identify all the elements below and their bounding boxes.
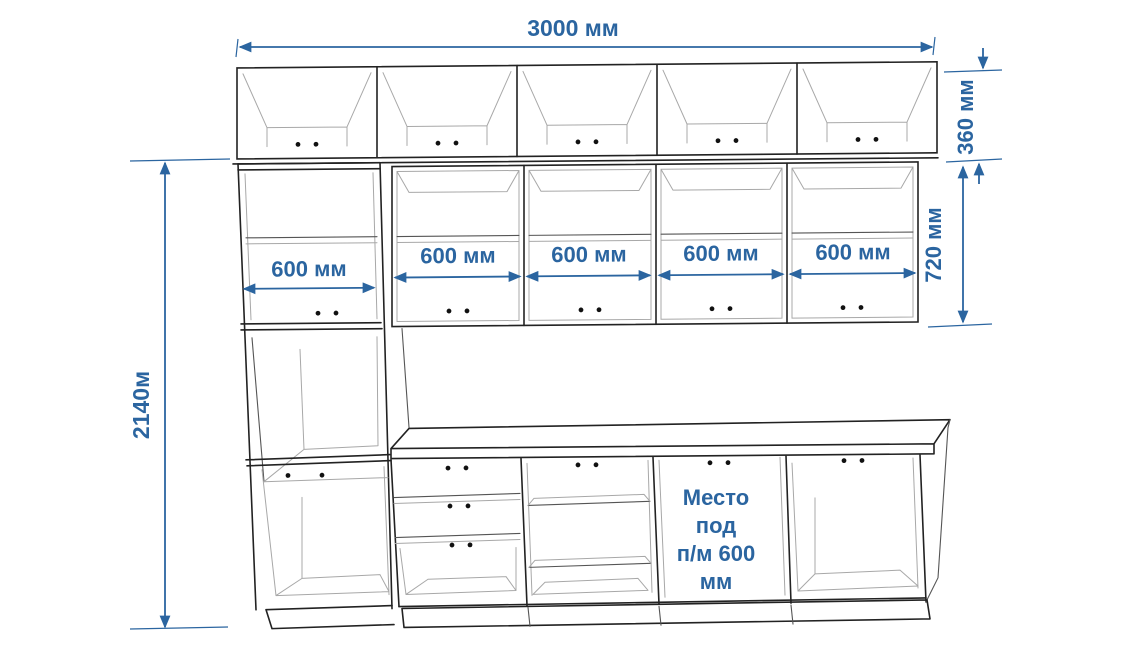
drawing-line: [266, 606, 394, 629]
drawing-line: [594, 462, 599, 467]
drawing-line: [790, 273, 915, 274]
drawing-line: [246, 237, 377, 238]
drawing-line: [237, 62, 937, 159]
drawing-line: [383, 72, 511, 146]
dimension-tall-cabinet-width: 600 мм: [244, 256, 374, 289]
dimension-label-upper-cabinet-height: 360 мм: [953, 79, 978, 154]
dimension-wall-cabinet-4-width: 600 мм: [790, 239, 915, 274]
drawing-line: [792, 458, 918, 591]
door-handles: [296, 137, 879, 147]
dimension-label-tall-cabinet-width: 600 мм: [271, 256, 346, 282]
dimension-label-wall-cabinet-1: 600 мм: [420, 243, 495, 269]
drawing-line: [710, 306, 715, 311]
dimension-label-wall-cabinet-2: 600 мм: [551, 242, 626, 268]
drawing-line: [842, 458, 847, 463]
door-handles: [447, 305, 864, 313]
upper-cabinet-row: [233, 62, 938, 164]
drawing-line: [726, 460, 731, 465]
drawing-line: [859, 305, 864, 310]
dimension-wall-cabinet-1-width: 600 мм: [395, 242, 520, 277]
drawing-line: [238, 163, 380, 170]
drawing-line: [594, 139, 599, 144]
drawing-line: [663, 69, 791, 143]
dimension-label-wall-cabinet-height: 720 мм: [921, 207, 946, 282]
drawing-line: [262, 467, 389, 596]
kitchen-elevation-svg: 600 мм 600 мм 600 мм 600 мм 600 мм 3000 …: [0, 0, 1123, 669]
drawing-line: [400, 547, 516, 594]
drawing-line: [708, 460, 713, 465]
drawing-line: [246, 243, 377, 244]
drawing-line: [533, 578, 648, 594]
dimension-label-total-height: 2140м: [128, 371, 154, 439]
drawing-line: [874, 137, 879, 142]
dishwasher-note: Место под п/м 600 мм: [677, 485, 756, 594]
drawing-line: [926, 420, 950, 602]
drawing-line: [391, 420, 950, 459]
drawing-line: [246, 455, 391, 466]
drawing-line: [296, 142, 301, 147]
drawing-line: [395, 539, 520, 543]
drawing-line: [468, 542, 473, 547]
drawing-line: [792, 232, 913, 233]
drawing-line: [402, 600, 930, 628]
drawing-line: [448, 504, 453, 509]
drawing-line: [928, 324, 992, 327]
drawing-line: [529, 563, 651, 567]
drawing-line: [527, 460, 652, 595]
drawing-line: [734, 138, 739, 143]
drawing-line: [286, 473, 291, 478]
drawing-line: [841, 305, 846, 310]
drawing-line: [728, 306, 733, 311]
dimension-wall-cabinet-height: 720 мм: [921, 167, 992, 327]
dimension-total-height: 2140м: [128, 159, 230, 629]
dimension-label-total-width: 3000 мм: [527, 15, 619, 41]
drawing-line: [399, 598, 926, 607]
drawing-line: [316, 311, 321, 316]
base-cabinet-shelves: [527, 460, 652, 595]
drawing-line: [446, 466, 451, 471]
dimension-label-wall-cabinet-4: 600 мм: [815, 239, 890, 265]
drawing-line: [803, 68, 931, 142]
drawing-line: [395, 533, 520, 537]
base-plinth: [402, 600, 930, 628]
drawing-line: [334, 311, 339, 316]
dimension-wall-cabinet-3-width: 600 мм: [659, 240, 783, 275]
drawing-line: [391, 460, 399, 607]
dimension-total-width: 3000 мм: [236, 15, 935, 57]
drawing-line: [450, 543, 455, 548]
tall-cabinet-plinth: [266, 606, 394, 629]
drawing-line: [527, 275, 650, 276]
drawing-line: [264, 337, 388, 482]
dimension-label-wall-cabinet-3: 600 мм: [683, 240, 758, 266]
tall-cabinet-base-box: [262, 467, 389, 596]
base-cabinet-drawers: [394, 465, 520, 594]
countertop: [391, 420, 950, 459]
drawing-line: [528, 501, 650, 505]
drawing-line: [466, 503, 471, 508]
drawing-line: [529, 234, 651, 235]
drawing-line: [395, 276, 520, 277]
cabinet-artwork: 600 мм 600 мм 600 мм 600 мм 600 мм: [233, 62, 950, 629]
drawing-line: [579, 308, 584, 313]
side-panel-line: [402, 328, 409, 427]
drawing-line: [576, 463, 581, 468]
drawing-line: [465, 309, 470, 314]
drawing-line: [523, 70, 651, 144]
drawing-line: [243, 73, 371, 147]
base-cabinet-run: [391, 420, 950, 628]
tall-cabinet: [238, 163, 394, 629]
drawing-line: [244, 288, 374, 289]
dimension-upper-cabinet-height: 360 мм: [944, 48, 1002, 184]
drawing-line: [576, 140, 581, 145]
dishwasher-note-line-2: под: [696, 513, 736, 538]
drawing-line: [597, 307, 602, 312]
dishwasher-note-line-3: п/м 600: [677, 541, 756, 566]
drawing-line: [380, 163, 392, 609]
drawing-line: [436, 141, 441, 146]
drawing-line: [320, 473, 325, 478]
drawing-line: [464, 466, 469, 471]
dishwasher-note-line-4: мм: [700, 569, 733, 594]
kitchen-drawing-canvas: 600 мм 600 мм 600 мм 600 мм 600 мм 3000 …: [0, 0, 1123, 669]
drawing-line: [454, 141, 459, 146]
drawing-line: [659, 274, 783, 275]
drawing-line: [528, 605, 793, 626]
drawing-line: [447, 309, 452, 314]
drawing-line: [245, 173, 377, 320]
drawing-line: [860, 458, 865, 463]
drawing-line: [716, 138, 721, 143]
drawing-line: [241, 323, 382, 330]
drawing-line: [661, 233, 782, 234]
drawing-line: [394, 493, 520, 497]
drawing-line: [856, 137, 861, 142]
drawing-line: [394, 499, 520, 503]
dishwasher-note-line-1: Место: [683, 485, 749, 510]
drawing-line: [397, 235, 519, 236]
base-cabinet-right: [792, 458, 918, 591]
open-niche: [252, 337, 388, 482]
drawing-line: [314, 142, 319, 147]
dimension-wall-cabinet-2-width: 600 мм: [527, 241, 650, 276]
